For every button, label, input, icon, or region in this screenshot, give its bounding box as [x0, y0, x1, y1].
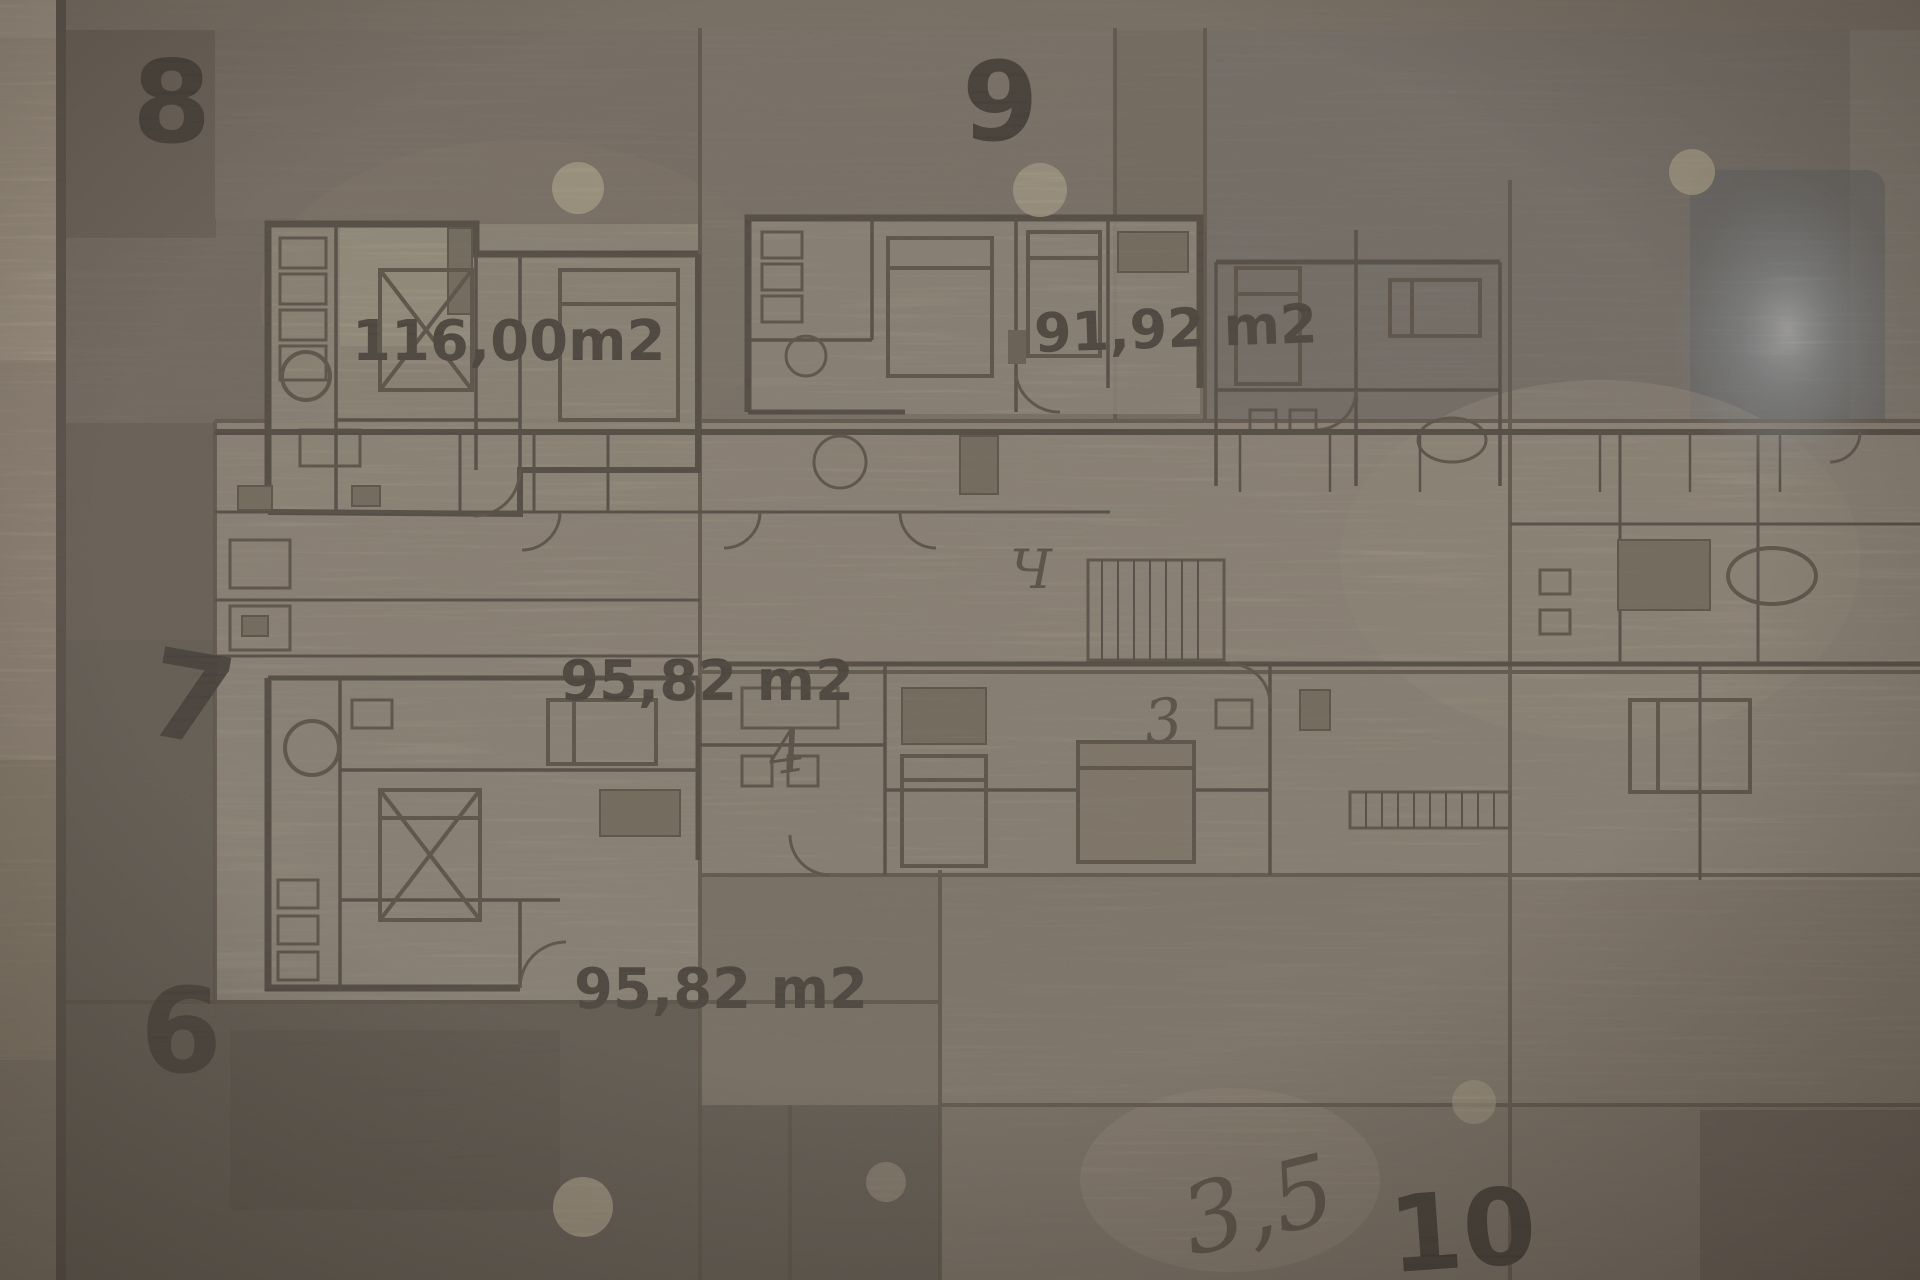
photo-texture [0, 0, 1920, 1280]
floorplan-scene: 8 9 7 6 10 116,00m2 91,92 m2 95,82 m2 95… [0, 0, 1920, 1280]
floorplan-photo: 8 9 7 6 10 116,00m2 91,92 m2 95,82 m2 95… [0, 0, 1920, 1280]
